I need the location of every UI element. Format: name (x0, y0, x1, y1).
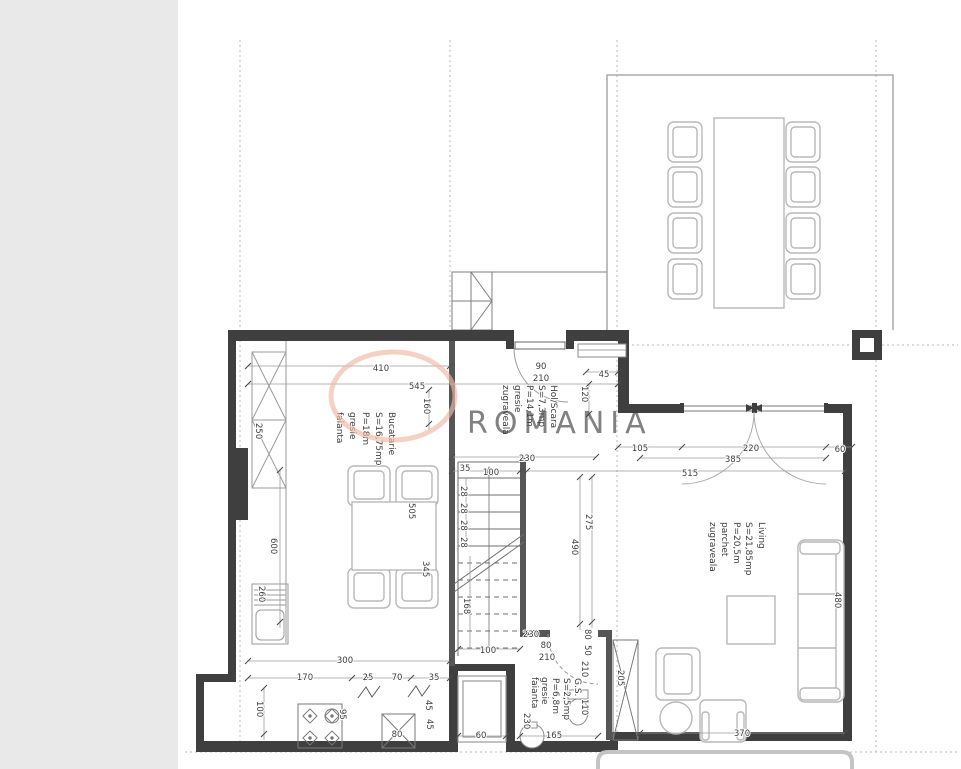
kitchen-chair (396, 466, 438, 506)
watermark-text: ROMANIA (467, 406, 652, 441)
armchair (656, 648, 700, 700)
dim-kitchen-width: 410 (373, 364, 389, 374)
pillar (852, 330, 882, 360)
dim-hall-width: 230 (519, 454, 535, 464)
dim-win-door: 220 (743, 444, 759, 454)
dim-gs-r-80: 80 (582, 629, 592, 640)
dim-living-width: 515 (682, 469, 698, 479)
living-area: S=21,85mp (743, 522, 753, 576)
dim-stove-side: 95 (337, 709, 347, 720)
bathroom-floor: gresie (539, 677, 549, 705)
dim-entry-door-width: 90 (536, 362, 547, 372)
sofa (798, 540, 844, 702)
dining-chair (786, 259, 820, 299)
kitchen-chair (396, 568, 438, 608)
dim-gs-r-110: 110 (579, 699, 589, 715)
dim-gs-total-width: 230 (523, 630, 539, 640)
living-floor: parchet (719, 522, 729, 557)
dining-chair (786, 122, 820, 162)
dim-kitchen-width-total: 545 (409, 382, 425, 392)
dim-gs-door-height: 210 (539, 653, 555, 663)
dim-tread-3: 28 (458, 520, 468, 531)
dim-alcove-depth: 100 (254, 701, 264, 717)
dim-stair-offset: 35 (460, 464, 471, 474)
dim-entry-door-height: 210 (533, 374, 549, 384)
side-table (660, 702, 692, 734)
dining-chair (668, 122, 702, 162)
dim-shaft-width: 60 (476, 731, 487, 741)
dining-chair (668, 213, 702, 253)
living-name: Living (756, 522, 766, 549)
dim-seg-35: 35 (429, 673, 440, 683)
dim-sink-len: 260 (256, 586, 266, 602)
floor-plan-page: 410 545 90 210 45 230 35 100 100 230 80 … (0, 0, 961, 769)
dim-seg-45a: 45 (423, 700, 433, 711)
dim-table-side: 345 (420, 561, 430, 577)
coffee-table (727, 596, 775, 644)
dim-tread-2: 28 (458, 503, 468, 514)
bathroom-area: S=2,5mp (561, 678, 571, 720)
dim-table-len: 505 (406, 503, 416, 519)
kitchen-chair (348, 568, 390, 608)
kitchen-table (352, 502, 436, 570)
dim-gs-r-210: 210 (579, 661, 589, 677)
kitchen-chair (348, 466, 390, 506)
dim-kitchen-depth: 600 (268, 538, 278, 554)
dim-entry-side: 45 (599, 370, 610, 380)
bathroom-finish: faianta (529, 677, 539, 708)
dim-gs-r-50: 50 (582, 645, 592, 656)
dim-tread-1: 28 (458, 486, 468, 497)
dim-stair-run: 168 (461, 598, 471, 614)
dim-seg-45b: 45 (424, 719, 434, 730)
dim-kitchen-bottom: 300 (337, 656, 353, 666)
dim-seg-170: 170 (297, 673, 313, 683)
kitchen-perimeter: P=18m (360, 412, 370, 445)
dining-chair (668, 167, 702, 207)
dim-stair-width-top: 100 (483, 468, 499, 478)
dim-wardrobe-len: 205 (615, 670, 625, 686)
floor-plan-image: 410 545 90 210 45 230 35 100 100 230 80 … (0, 0, 961, 769)
dim-kitchen-recess: 160 (421, 398, 431, 414)
dining-chair (786, 213, 820, 253)
sidebar-background (0, 0, 178, 769)
dim-gs-bottom: 165 (546, 731, 562, 741)
dining-chair (668, 259, 702, 299)
dim-win-left: 105 (632, 444, 648, 454)
dim-seg-25: 25 (363, 673, 374, 683)
dining-table-set (668, 118, 820, 308)
dim-seg-70: 70 (392, 673, 403, 683)
dim-cabinet-depth: 250 (253, 423, 263, 439)
radiator (578, 344, 626, 357)
dim-win-right: 60 (835, 445, 846, 455)
dim-stair-width-bottom: 100 (480, 646, 496, 656)
dim-entry-side-height: 120 (579, 386, 589, 402)
dining-table (714, 118, 784, 308)
dim-living-bottom: 370 (734, 729, 750, 739)
bathroom-name: G.S. (572, 678, 582, 696)
dining-chair (786, 167, 820, 207)
living-perimeter: P=20,5m (731, 522, 741, 564)
kitchen-name: Bucatarie (386, 412, 396, 456)
dim-fridge-width: 80 (392, 730, 403, 740)
dim-hall-depth: 275 (583, 514, 593, 530)
dim-sofa-length: 480 (832, 592, 842, 608)
dim-gs-inner-height: 230 (521, 713, 531, 729)
dim-tread-4: 28 (458, 537, 468, 548)
living-finish: zugraveala (707, 522, 717, 572)
dim-gs-door-width: 80 (541, 641, 552, 651)
dim-win-opening: 385 (725, 455, 741, 465)
dim-stair-total-run: 490 (569, 539, 579, 555)
bathroom-perimeter: P=6,8m (550, 678, 560, 714)
